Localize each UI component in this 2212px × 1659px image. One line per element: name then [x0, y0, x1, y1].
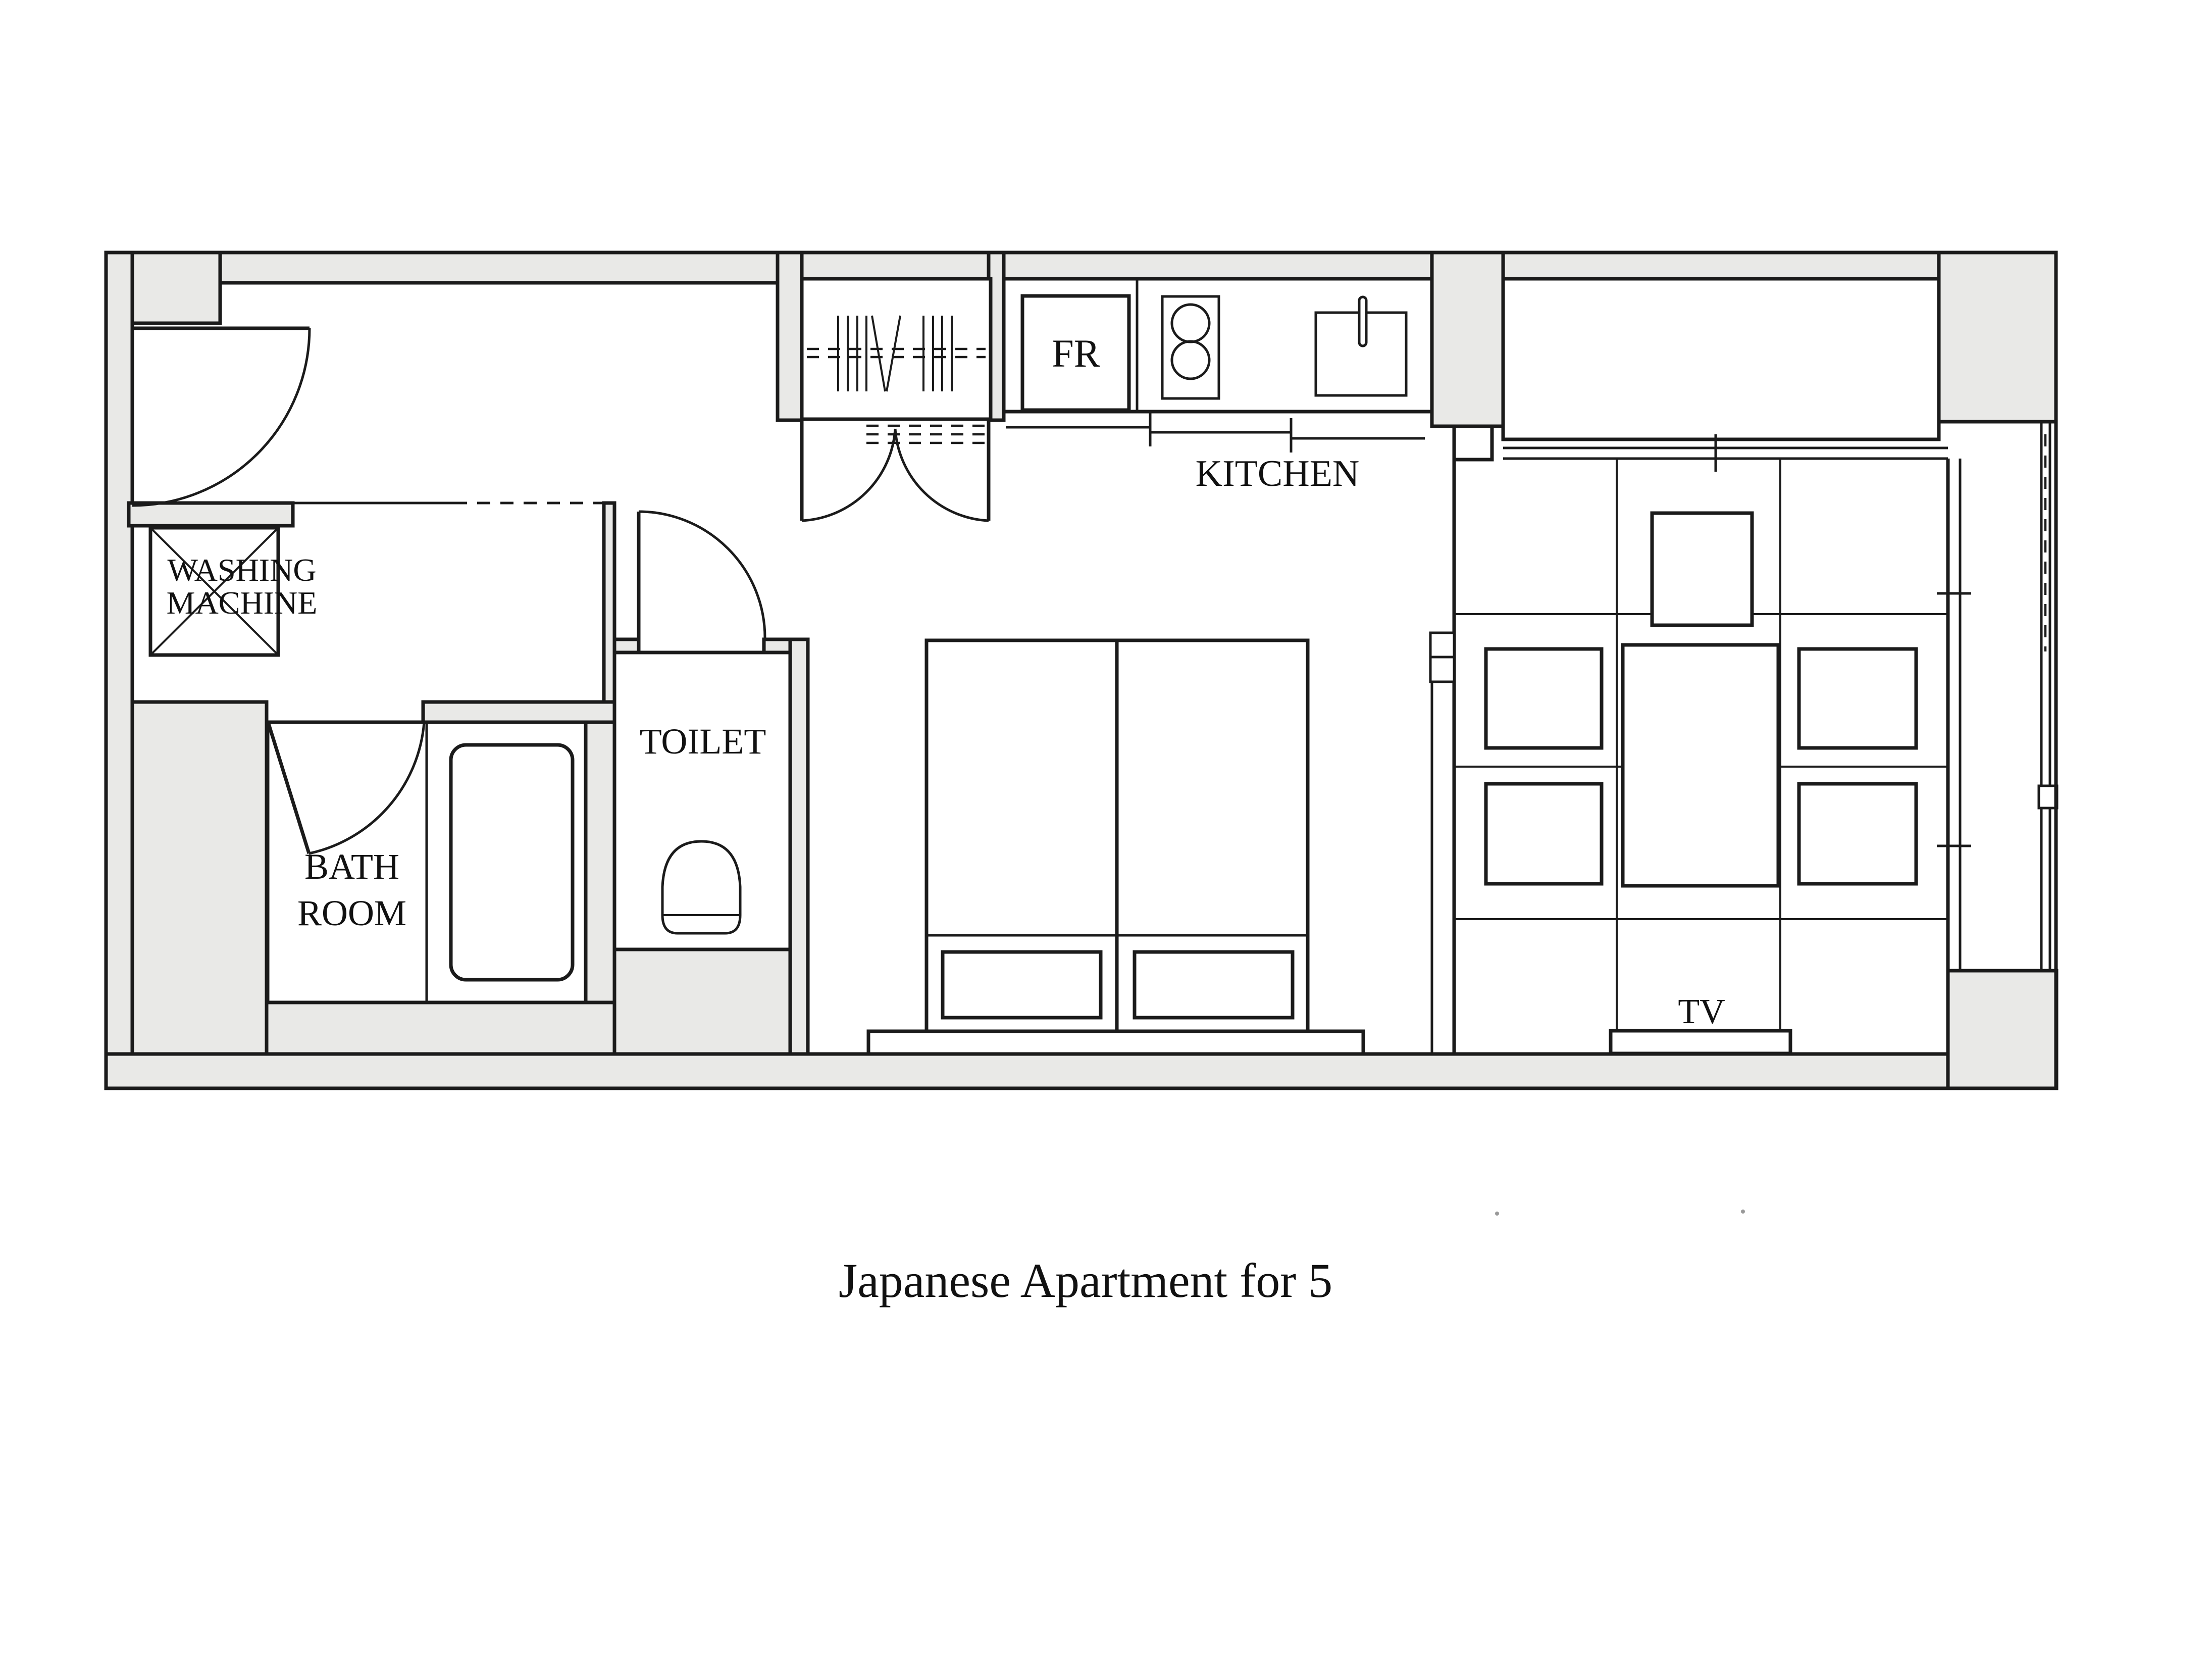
wall-hall-band [129, 503, 293, 526]
entrance-door [132, 328, 310, 506]
label-washing-machine-2: MACHINE [167, 585, 318, 621]
sink-icon [1316, 297, 1406, 395]
wall-below-toilet [614, 949, 790, 1054]
toilet-fixture-icon [662, 841, 740, 933]
bed-pillow [943, 952, 1101, 1018]
entrance-door-swing-arc [132, 328, 310, 506]
bed-base-platform [868, 1031, 1363, 1054]
tv-stand [1611, 1031, 1790, 1053]
partition-pocket [1430, 657, 1454, 682]
low-table [1623, 645, 1778, 886]
twin-beds [868, 640, 1363, 1054]
toilet-door-swing-arc [639, 512, 765, 638]
wall-toilet-right [790, 639, 808, 1054]
cushion [1652, 513, 1752, 625]
wall-left [106, 253, 132, 1088]
wall-top-right-block [1939, 253, 2056, 422]
kitchen-pass-lines [1006, 413, 1425, 453]
artifact-dot [1495, 1212, 1499, 1216]
partition-pocket [1430, 633, 1454, 657]
label-toilet: TOILET [640, 721, 766, 762]
label-bath-room-1: BATH [304, 846, 399, 887]
cushion [1486, 784, 1602, 884]
toilet-door [639, 512, 765, 639]
artifact-dot [1741, 1210, 1745, 1214]
label-fridge: FR [1052, 331, 1100, 375]
label-bath-room-2: ROOM [297, 893, 406, 933]
label-kitchen: KITCHEN [1196, 453, 1360, 494]
sliding-partition [1430, 460, 1454, 1054]
wall-bath-top-right [423, 702, 614, 722]
wall-bottom-right-block [1948, 971, 2056, 1088]
closet-door-arc-left [802, 429, 895, 521]
bathtub-icon [451, 745, 573, 980]
wall-toilet-stub-left [614, 639, 639, 652]
wall-kitchen-divider [1432, 253, 1503, 426]
column-box [1454, 426, 1492, 460]
floor-plan: WASHING MACHINE BATH ROOM TOILET KITCHEN… [0, 0, 2212, 1659]
cushion [1799, 784, 1916, 884]
label-washing-machine-1: WASHING [167, 552, 316, 588]
cushion [1486, 649, 1602, 748]
wall-bath-left [132, 702, 267, 1054]
wall-bottom [106, 1054, 2056, 1088]
closet-double-doors [802, 420, 989, 521]
bed-pillow [1135, 952, 1293, 1018]
faucet-icon [1359, 297, 1366, 346]
wall-closet-left [778, 253, 802, 420]
storage-room [1503, 279, 1939, 439]
wall-bath-bottom [267, 1002, 614, 1054]
stove-icon [1162, 296, 1219, 398]
plan-caption: Japanese Apartment for 5 [839, 1253, 1332, 1308]
label-tv: TV [1678, 992, 1725, 1031]
cushion [1799, 649, 1916, 748]
